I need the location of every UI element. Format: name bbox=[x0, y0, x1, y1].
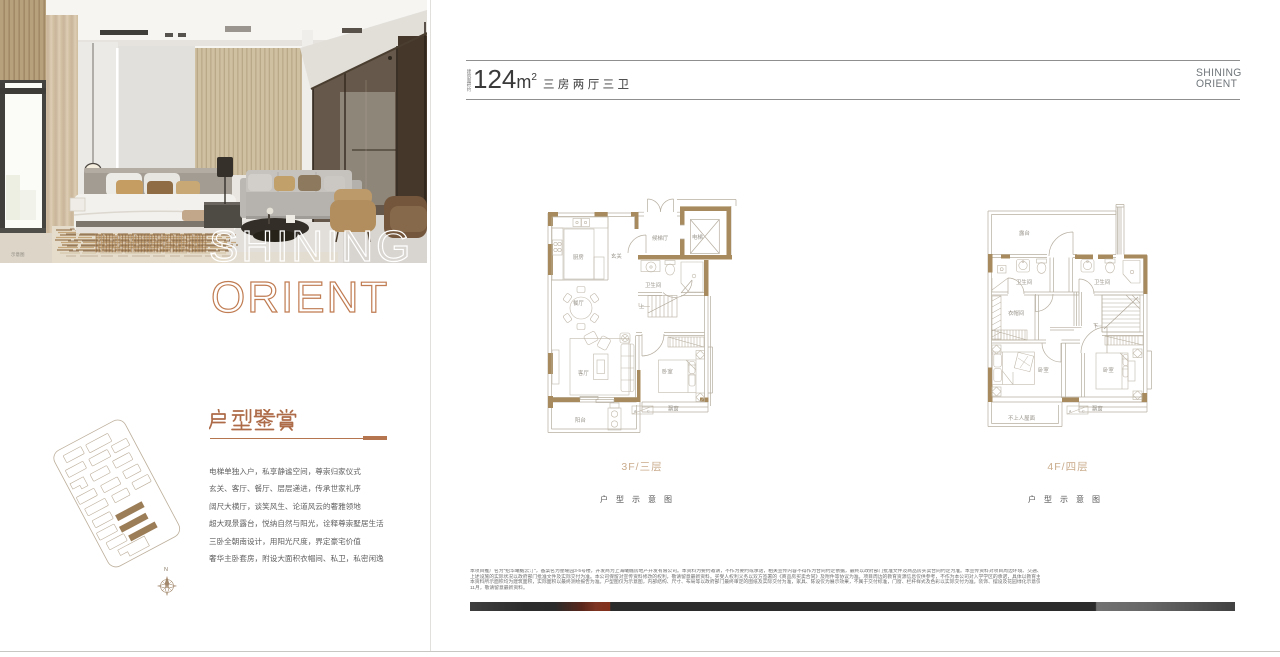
svg-text:露台: 露台 bbox=[1019, 229, 1030, 237]
svg-text:A: A bbox=[1069, 410, 1072, 414]
svg-text:飘窗: 飘窗 bbox=[668, 405, 679, 413]
svg-text:电梯: 电梯 bbox=[692, 233, 703, 241]
svg-text:飘窗: 飘窗 bbox=[1092, 405, 1103, 413]
svg-text:候梯厅: 候梯厅 bbox=[652, 234, 669, 242]
svg-text:卧室: 卧室 bbox=[1038, 366, 1049, 374]
svg-text:卫生间: 卫生间 bbox=[1016, 278, 1032, 286]
svg-text:卫生间: 卫生间 bbox=[645, 281, 661, 289]
svg-text:N: N bbox=[164, 567, 168, 573]
svg-text:示意图: 示意图 bbox=[11, 251, 25, 258]
svg-text:卫生间: 卫生间 bbox=[1094, 278, 1110, 286]
svg-text:客厅: 客厅 bbox=[578, 369, 589, 377]
svg-text:玄关: 玄关 bbox=[611, 252, 622, 260]
svg-text:不上人屋面: 不上人屋面 bbox=[1008, 414, 1036, 422]
svg-text:C: C bbox=[647, 410, 650, 414]
svg-text:阳台: 阳台 bbox=[575, 416, 586, 424]
svg-text:上: 上 bbox=[639, 303, 645, 311]
svg-text:C: C bbox=[1082, 410, 1085, 414]
svg-text:下: 下 bbox=[1093, 323, 1099, 330]
svg-text:餐厅: 餐厅 bbox=[573, 299, 584, 307]
svg-text:卧室: 卧室 bbox=[662, 368, 673, 376]
svg-text:卧室: 卧室 bbox=[1103, 366, 1114, 374]
svg-text:厨房: 厨房 bbox=[573, 253, 584, 261]
svg-text:衣帽间: 衣帽间 bbox=[1008, 309, 1024, 317]
